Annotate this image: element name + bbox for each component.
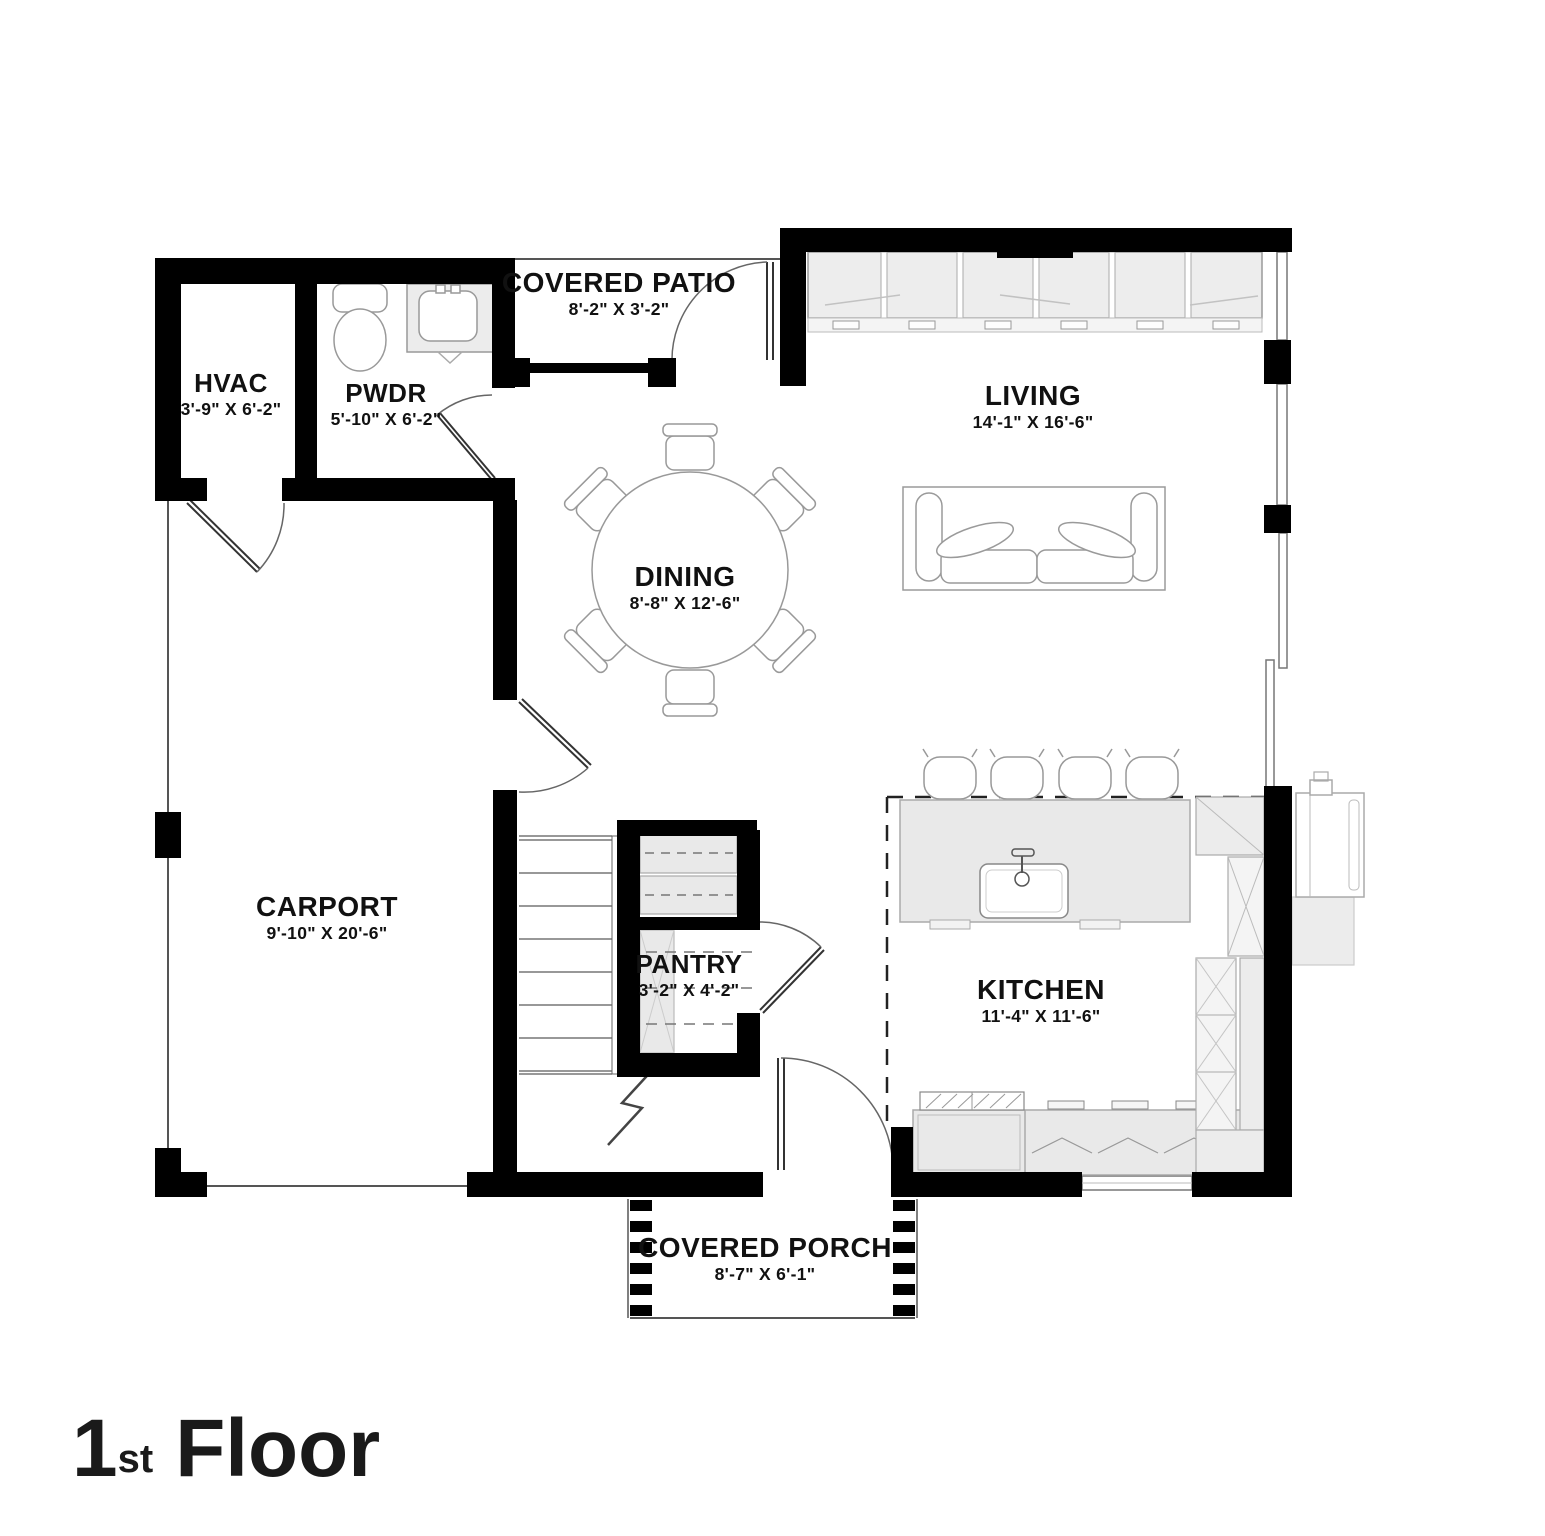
room-name: KITCHEN: [977, 974, 1105, 1006]
room-dims: 14'-1" X 16'-6": [973, 412, 1094, 432]
room-name: CARPORT: [256, 891, 398, 923]
room-label-pantry: PANTRY 3'-2" X 4'-2": [636, 950, 743, 1000]
plan-title-number: 1: [72, 1403, 118, 1494]
room-name: COVERED PATIO: [502, 267, 736, 299]
bar-stools: [923, 749, 1179, 799]
room-name: PANTRY: [636, 950, 743, 980]
staircase: [519, 836, 618, 1074]
toilet: [333, 284, 387, 371]
break-line: [608, 1066, 656, 1145]
room-label-dining: DINING 8'-8" X 12'-6": [630, 561, 741, 613]
room-name: COVERED PORCH: [638, 1232, 892, 1264]
room-dims: 8'-8" X 12'-6": [630, 593, 741, 613]
floor-plan-page: HVAC 3'-9" X 6'-2" PWDR 5'-10" X 6'-2" C…: [0, 0, 1545, 1536]
kitchen-appliances: [1196, 797, 1264, 1174]
room-dims: 3'-9" X 6'-2": [181, 399, 282, 419]
kitchen-island: [900, 800, 1190, 929]
room-dims: 8'-2" X 3'-2": [502, 299, 736, 319]
room-label-carport: CARPORT 9'-10" X 20'-6": [256, 891, 398, 943]
room-label-kitchen: KITCHEN 11'-4" X 11'-6": [977, 974, 1105, 1026]
room-name: LIVING: [973, 380, 1094, 412]
sofa: [903, 487, 1165, 590]
room-label-covered-porch: COVERED PORCH 8'-7" X 6'-1": [638, 1232, 892, 1284]
kitchen-rear-window: [1082, 1176, 1192, 1190]
room-dims: 5'-10" X 6'-2": [331, 409, 442, 429]
plan-title-word: Floor: [175, 1403, 380, 1494]
room-name: DINING: [630, 561, 741, 593]
room-dims: 3'-2" X 4'-2": [636, 980, 743, 1000]
living-window-seat: [808, 252, 1262, 332]
plan-title-ordinal: st: [118, 1437, 154, 1481]
room-dims: 9'-10" X 20'-6": [256, 923, 398, 943]
plan-title: 1stFloor: [72, 1408, 380, 1490]
room-label-hvac: HVAC 3'-9" X 6'-2": [181, 369, 282, 419]
room-dims: 11'-4" X 11'-6": [977, 1006, 1105, 1026]
floor-plan-drawing: [0, 0, 1545, 1536]
exterior-grill-unit: [1292, 772, 1364, 965]
room-label-living: LIVING 14'-1" X 16'-6": [973, 380, 1094, 432]
room-name: HVAC: [181, 369, 282, 399]
bathroom-sink: [407, 284, 494, 363]
room-dims: 8'-7" X 6'-1": [638, 1264, 892, 1284]
room-label-covered-patio: COVERED PATIO 8'-2" X 3'-2": [502, 267, 736, 319]
room-name: PWDR: [331, 379, 442, 409]
doors: [187, 262, 893, 1170]
room-label-pwdr: PWDR 5'-10" X 6'-2": [331, 379, 442, 429]
walls: [155, 228, 1292, 1197]
